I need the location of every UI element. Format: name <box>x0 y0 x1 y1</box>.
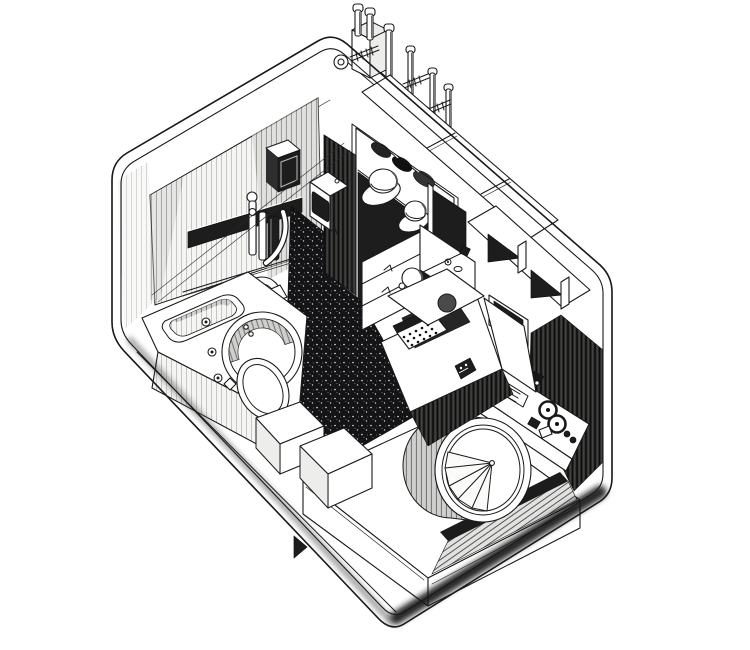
desk-roof-port <box>438 294 456 312</box>
capsule-cutaway-illustration: Capsule dwelling interior — axonometric … <box>0 0 750 650</box>
illustration-stage: Capsule dwelling interior — axonometric … <box>0 0 750 650</box>
heater-box <box>266 140 300 192</box>
